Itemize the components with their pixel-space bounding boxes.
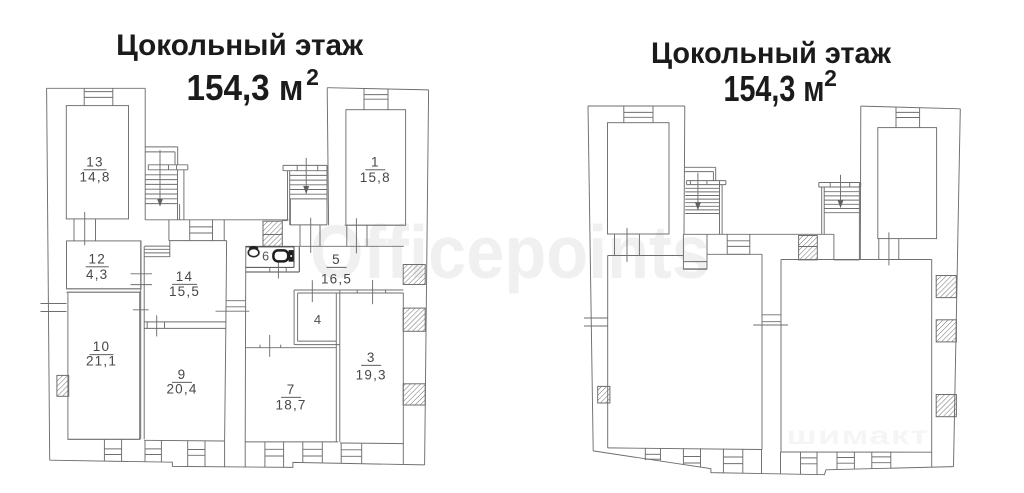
svg-text:15,8: 15,8 <box>360 170 391 185</box>
svg-text:14,8: 14,8 <box>79 170 110 185</box>
svg-text:2: 2 <box>306 64 319 90</box>
svg-text:Цокольный этаж: Цокольный этаж <box>651 37 892 70</box>
svg-text:2: 2 <box>824 65 837 91</box>
svg-text:19,3: 19,3 <box>356 367 387 382</box>
svg-text:7: 7 <box>287 382 296 397</box>
svg-text:Officepoints: Officepoints <box>310 210 710 294</box>
svg-text:154,3 м: 154,3 м <box>724 68 825 109</box>
svg-text:18,7: 18,7 <box>276 397 307 412</box>
svg-text:6: 6 <box>262 250 269 264</box>
svg-text:9: 9 <box>178 367 187 382</box>
svg-text:5: 5 <box>332 252 341 267</box>
svg-text:4: 4 <box>314 312 321 327</box>
svg-text:20,4: 20,4 <box>166 381 197 396</box>
svg-text:12: 12 <box>88 251 105 266</box>
svg-text:3: 3 <box>367 350 376 365</box>
svg-text:14: 14 <box>176 269 193 284</box>
svg-text:21,1: 21,1 <box>86 354 117 369</box>
svg-text:шимакт: шимакт <box>787 420 930 450</box>
svg-text:4,3: 4,3 <box>86 267 108 282</box>
svg-text:10: 10 <box>93 339 110 354</box>
svg-text:154,3 м: 154,3 м <box>187 67 304 108</box>
svg-text:13: 13 <box>86 154 103 169</box>
svg-text:1: 1 <box>371 154 380 169</box>
svg-text:15,5: 15,5 <box>169 284 200 299</box>
svg-text:Цокольный этаж: Цокольный этаж <box>116 29 364 62</box>
svg-text:16,5: 16,5 <box>321 271 352 286</box>
